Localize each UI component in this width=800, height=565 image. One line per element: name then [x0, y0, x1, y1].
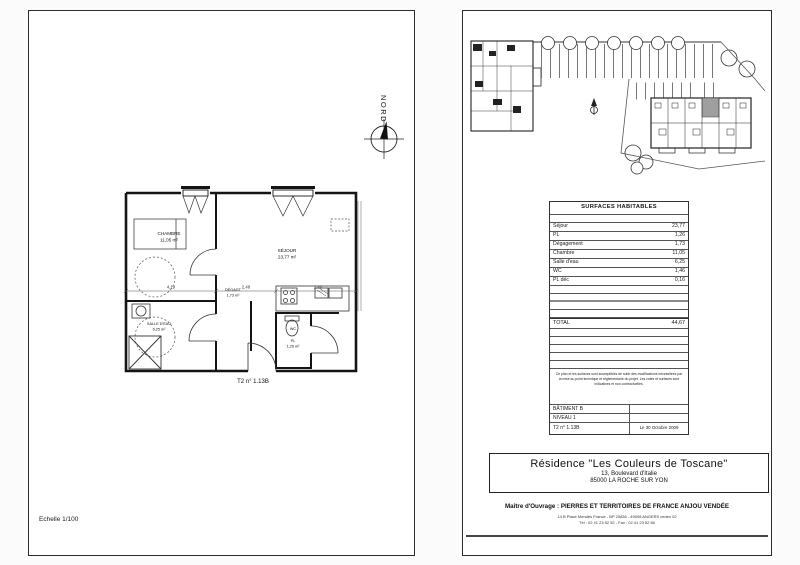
table-empty-row [550, 286, 688, 294]
parking-area [533, 42, 721, 91]
shower-icon [129, 336, 161, 369]
title-block: Résidence "Les Couleurs de Toscane" 13, … [489, 453, 769, 493]
row-value: 11,05 [672, 251, 685, 256]
room-label-degagt: DÉGAGT [225, 287, 242, 292]
row-label: WC [553, 269, 562, 274]
table-empty-row [550, 215, 688, 223]
table-row: PL 1,26 [550, 232, 688, 241]
furniture-dashed-icon [331, 219, 349, 231]
room-label-sejour: SÉJOUR [278, 247, 297, 253]
info-row-batiment: BÂTIMENT B [550, 405, 688, 414]
date-label: Le 30 Octobre 2009 [630, 423, 688, 434]
table-row: WC 1,46 [550, 268, 688, 277]
interior-walls [126, 193, 339, 371]
lot-label: T2 n° 1.13B [550, 423, 630, 434]
row-label: PL [553, 233, 559, 238]
title-sheet-page: SURFACES HABITABLES Séjour 23,77 PL 1,26… [462, 10, 772, 556]
table-empty-row [550, 329, 688, 337]
maitre-ouvrage-line: Maître d'Ouvrage : PIERRES ET TERRITOIRE… [463, 503, 771, 510]
washbasin-icon [132, 304, 150, 318]
door-arc-icon [189, 249, 338, 371]
batiment-label: BÂTIMENT B [550, 405, 630, 413]
info-row-niveau: NIVEAU 1 [550, 414, 688, 423]
table-row: Dégagement 1,73 [550, 241, 688, 250]
drawing-sheet: 4,19 2,48 2,40 CHAMBRE 11,05 m² SÉJOUR 2… [0, 0, 800, 565]
row-value: 1,26 [675, 233, 685, 238]
room-area-degagt: 1,73 m² [227, 294, 241, 298]
residence-name: Résidence "Les Couleurs de Toscane" [490, 458, 768, 470]
table-total-row: TOTAL 44,67 [550, 318, 688, 329]
outer-walls [126, 193, 356, 371]
highlighted-unit [702, 98, 719, 117]
table-empty-row [550, 353, 688, 361]
row-label: Chambre [553, 251, 574, 256]
room-area-sejour: 23,77 m² [278, 255, 297, 260]
table-empty-row [550, 337, 688, 345]
table-empty-row [550, 294, 688, 302]
disclaimer-note: Ce plan et les surfaces sont susceptible… [550, 369, 688, 405]
table-title: SURFACES HABITABLES [550, 202, 688, 215]
table-row: Chambre 11,05 [550, 250, 688, 259]
room-label-wc: WC [290, 327, 297, 331]
room-area-chambre: 11,05 m² [160, 238, 178, 243]
footer-divider [466, 535, 768, 537]
dimension-label: 2,40 [314, 285, 323, 290]
row-value: 6,25 [675, 260, 685, 265]
room-area-salle-deau: 6,25 m² [153, 328, 167, 332]
table-empty-row [550, 361, 688, 369]
residence-address-line1: 13, Boulevard d'Italie [490, 471, 768, 477]
floor-plan: 4,19 2,48 2,40 CHAMBRE 11,05 m² SÉJOUR 2… [29, 11, 414, 555]
table-row: Salle d'eau 6,25 [550, 259, 688, 268]
building-b [651, 98, 751, 153]
total-value: 44,67 [672, 321, 686, 326]
row-value: 1,46 [675, 269, 685, 274]
room-label-salle-deau: SALLE D'EAU [147, 322, 171, 326]
row-label: Salle d'eau [553, 260, 579, 265]
room-label-pl: PL [291, 339, 296, 343]
compass-icon: NORD [364, 95, 404, 159]
info-row-lot: T2 n° 1.13B Le 30 Octobre 2009 [550, 423, 688, 434]
maitre-phone-line: Tél : 02 41 23 52 52 - Fax : 02 41 23 52… [463, 520, 771, 525]
row-value: 0,16 [675, 278, 685, 283]
room-label-chambre: CHAMBRE [158, 231, 181, 236]
surfaces-table: SURFACES HABITABLES Séjour 23,77 PL 1,26… [549, 201, 689, 435]
dimension-label: 4,19 [167, 285, 176, 290]
site-plan [463, 11, 771, 191]
info-empty-cell [630, 414, 688, 422]
window-icon [181, 186, 210, 213]
residence-address-line2: 85000 LA ROCHE SUR YON [490, 478, 768, 484]
building-a [471, 41, 541, 131]
window-icon [271, 186, 315, 216]
row-label: Séjour [553, 224, 568, 229]
north-arrow-icon [591, 98, 598, 115]
row-value: 1,73 [675, 242, 685, 247]
terrace-edge [358, 201, 361, 311]
table-empty-row [550, 345, 688, 353]
plan-label: T2 n° 1.13B [237, 379, 269, 385]
total-label: TOTAL [553, 321, 570, 326]
table-empty-row [550, 302, 688, 310]
niveau-label: NIVEAU 1 [550, 414, 630, 422]
row-value: 23,77 [672, 224, 685, 229]
compass-label: NORD [379, 95, 388, 123]
maitre-address-line: 14 B Place Mendès France - BP 20836 - 49… [463, 514, 771, 519]
row-label: Dégagement [553, 242, 583, 247]
floor-plan-page: 4,19 2,48 2,40 CHAMBRE 11,05 m² SÉJOUR 2… [28, 10, 415, 556]
room-area-pl: 1,26 m² [287, 345, 301, 349]
info-empty-cell [630, 405, 688, 413]
table-row: Séjour 23,77 [550, 223, 688, 232]
dimension-label: 2,48 [242, 285, 251, 290]
table-empty-row [550, 310, 688, 318]
table-row: PL déc 0,16 [550, 277, 688, 286]
scale-label: Echelle 1/100 [39, 516, 78, 523]
kitchen-counter-icon [276, 286, 349, 311]
row-label: PL déc [553, 278, 569, 283]
